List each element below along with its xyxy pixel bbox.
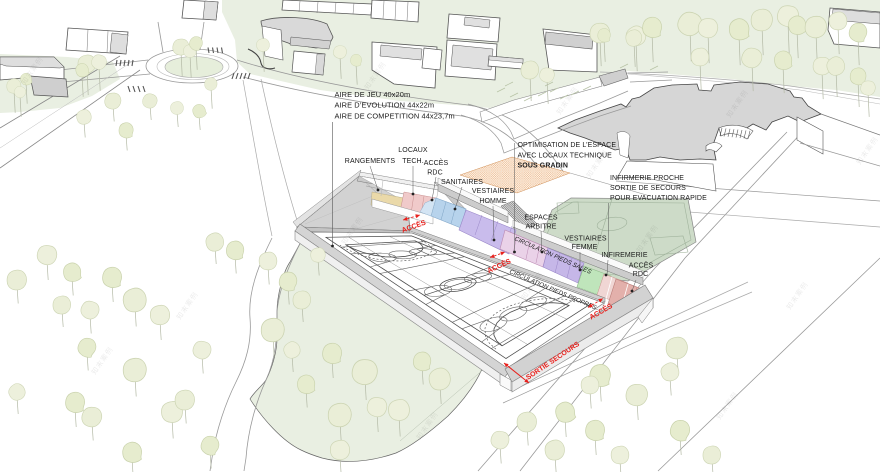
svg-text:HOMME: HOMME	[479, 198, 507, 205]
svg-text:RANGEMENTS: RANGEMENTS	[345, 158, 396, 165]
svg-text:SOUS GRADIN: SOUS GRADIN	[518, 163, 569, 170]
svg-text:ACCÈS: ACCÈS	[424, 158, 449, 167]
svg-text:LOCAUX: LOCAUX	[398, 147, 428, 154]
svg-text:ARBITRE: ARBITRE	[525, 224, 556, 231]
svg-text:RDC: RDC	[633, 271, 648, 278]
svg-text:VESTIAIRES: VESTIAIRES	[564, 236, 606, 243]
svg-text:ESPACES: ESPACES	[524, 215, 557, 222]
svg-text:SANITAIRES: SANITAIRES	[441, 179, 483, 186]
svg-text:VESTIAIRES: VESTIAIRES	[472, 188, 514, 195]
svg-text:OPTIMISATION DE L’ESPACE: OPTIMISATION DE L’ESPACE	[518, 142, 617, 149]
svg-text:AIRE DE JEU 40x20m: AIRE DE JEU 40x20m	[335, 90, 411, 99]
svg-text:SORTIE DE SECOURS: SORTIE DE SECOURS	[610, 185, 686, 192]
svg-text:FEMME: FEMME	[572, 244, 598, 251]
svg-text:TECH.: TECH.	[402, 158, 424, 165]
svg-text:POUR EVACUATION RAPIDE: POUR EVACUATION RAPIDE	[610, 195, 707, 202]
svg-text:INFIRMERIE PROCHE: INFIRMERIE PROCHE	[610, 175, 684, 182]
svg-text:AIRE DE COMPETITION 44x23,7m: AIRE DE COMPETITION 44x23,7m	[335, 112, 455, 121]
svg-text:RDC: RDC	[427, 170, 442, 177]
svg-text:AIRE D’EVOLUTION 44x22m: AIRE D’EVOLUTION 44x22m	[335, 101, 435, 110]
svg-text:ACCÈS: ACCÈS	[629, 261, 654, 270]
